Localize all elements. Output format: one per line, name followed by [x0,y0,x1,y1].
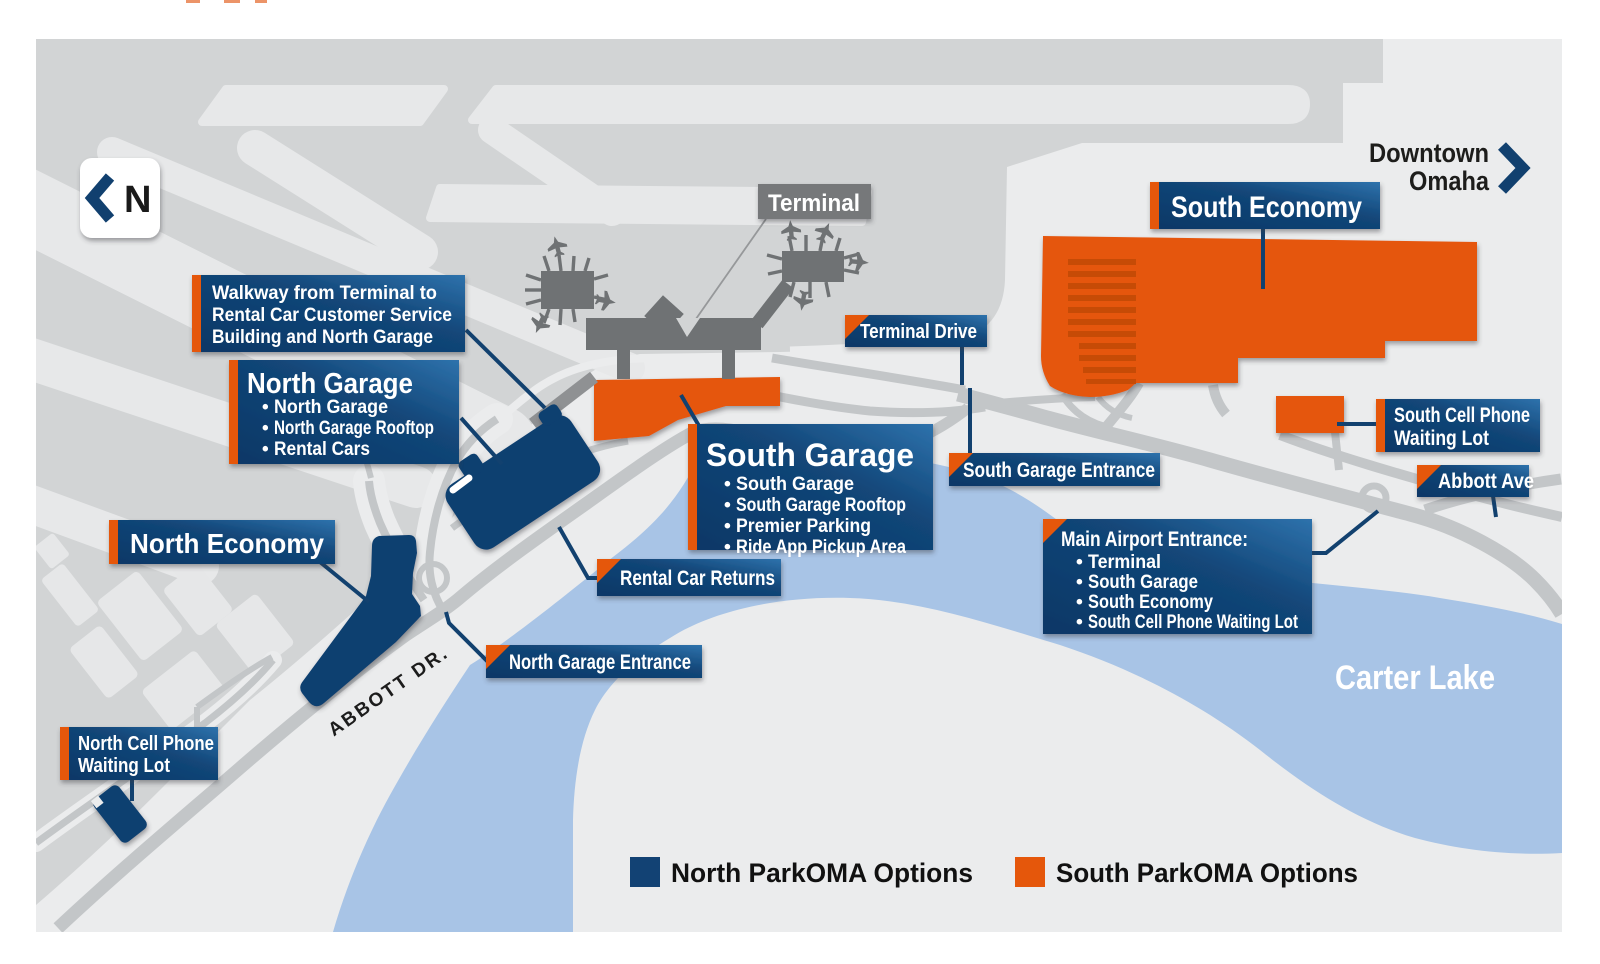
svg-text:•: • [1076,611,1083,633]
svg-text:South Garage Entrance: South Garage Entrance [963,459,1155,482]
svg-text:Omaha: Omaha [1409,166,1490,196]
svg-text:Walkway from Terminal to: Walkway from Terminal to [212,282,437,304]
svg-text:Downtown: Downtown [1369,138,1489,168]
svg-text:Rental Cars: Rental Cars [274,439,370,460]
svg-text:South ParkOMA Options: South ParkOMA Options [1056,858,1358,888]
svg-text:South Garage Rooftop: South Garage Rooftop [736,494,906,516]
svg-text:•: • [1076,591,1083,613]
svg-text:Waiting Lot: Waiting Lot [78,755,170,777]
svg-text:North Economy: North Economy [130,528,324,559]
svg-text:Premier Parking: Premier Parking [736,515,871,537]
svg-text:•: • [262,418,269,439]
svg-text:•: • [1076,571,1083,593]
svg-text:South Economy: South Economy [1088,591,1213,613]
svg-text:South Garage: South Garage [1088,571,1198,593]
svg-text:•: • [1076,551,1083,573]
svg-text:South Economy: South Economy [1171,191,1362,224]
svg-text:Main Airport Entrance:: Main Airport Entrance: [1061,527,1248,551]
svg-text:North Garage Rooftop: North Garage Rooftop [274,418,434,439]
svg-text:Terminal Drive: Terminal Drive [860,320,977,343]
svg-text:North Garage: North Garage [247,368,413,400]
svg-text:Waiting Lot: Waiting Lot [1394,427,1489,450]
svg-text:Terminal: Terminal [1088,551,1161,573]
svg-text:Terminal: Terminal [768,190,860,217]
svg-text:•: • [724,494,731,516]
svg-text:North Garage: North Garage [274,397,388,418]
svg-text:•: • [262,439,269,460]
svg-text:Abbott Ave: Abbott Ave [1438,470,1534,493]
svg-text:Ride App Pickup Area: Ride App Pickup Area [736,536,906,558]
svg-text:Building and North Garage: Building and North Garage [212,326,433,348]
svg-text:•: • [724,473,731,495]
svg-text:•: • [724,536,731,558]
svg-text:N: N [124,179,151,221]
svg-text:North Garage Entrance: North Garage Entrance [509,651,691,674]
svg-text:North ParkOMA Options: North ParkOMA Options [671,858,973,888]
svg-text:Carter Lake: Carter Lake [1335,659,1495,697]
svg-text:North Cell Phone: North Cell Phone [78,733,214,755]
svg-text:South Garage: South Garage [736,473,854,495]
svg-text:South Cell Phone Waiting Lot: South Cell Phone Waiting Lot [1088,611,1298,633]
svg-text:South Garage: South Garage [706,437,914,473]
svg-text:Rental Car Returns: Rental Car Returns [620,567,775,590]
svg-text:•: • [724,515,731,537]
svg-text:•: • [262,397,269,418]
svg-text:South Cell Phone: South Cell Phone [1394,404,1530,427]
svg-text:Rental Car Customer Service: Rental Car Customer Service [212,304,452,326]
